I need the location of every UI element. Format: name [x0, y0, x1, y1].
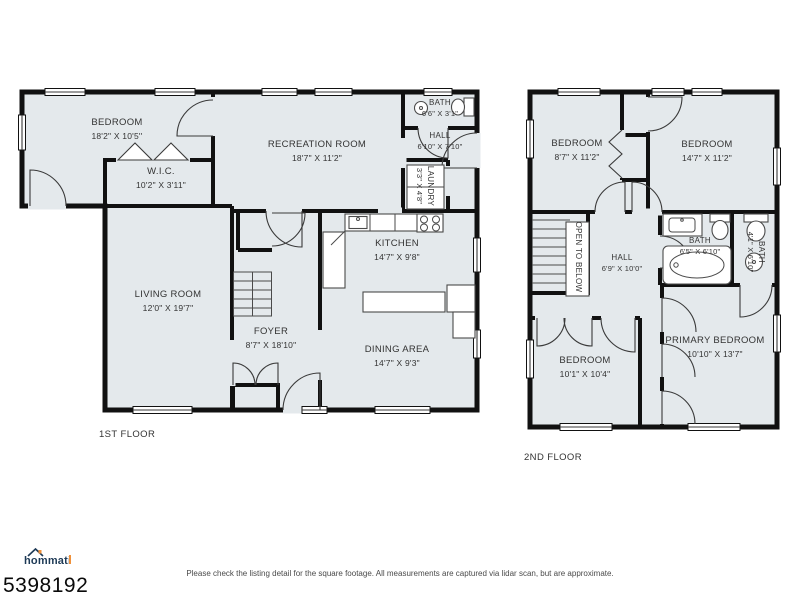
room-label-bath-2f: BATH 6'5" X 6'10" — [680, 235, 721, 257]
room-label-dining-area: DINING AREA 14'7" X 9'3" — [365, 343, 430, 369]
logo-accent-bar — [69, 555, 71, 564]
room-label-hall-1f: HALL 6'10" X 7'10" — [418, 130, 463, 152]
first-floor-title: 1ST FLOOR — [99, 429, 155, 440]
room-label-foyer: FOYER 8'7" X 18'10" — [246, 325, 297, 351]
room-label-laundry: LAUNDRY 3'3" X 4'8" — [414, 166, 436, 206]
kitchen-sink-icon — [349, 217, 367, 229]
room-label-bath-1f: BATH 6'6" X 3'1" — [422, 97, 458, 119]
chimney-icon — [39, 550, 42, 554]
room-label-hall-2f: HALL 6'9" X 10'0" — [602, 252, 643, 274]
stove-icon — [417, 214, 443, 232]
room-label-bedroom-2f-small: BEDROOM 8'7" X 11'2" — [551, 137, 602, 163]
disclaimer-text: Please check the listing detail for the … — [0, 569, 800, 578]
logo-text: hommati — [24, 555, 71, 567]
kitchen-island — [363, 292, 445, 312]
second-floor-title: 2ND FLOOR — [524, 452, 582, 463]
toilet-icon — [464, 98, 474, 116]
hommati-logo: hommati — [22, 547, 82, 569]
room-label-bedroom-1f: BEDROOM 18'2" X 10'5'' — [91, 116, 142, 142]
room-label-kitchen: KITCHEN 14'7" X 9'8" — [374, 237, 420, 263]
room-label-recreation-room: RECREATION ROOM 18'7" X 11'2" — [268, 138, 366, 164]
room-label-bedroom-2f-large: BEDROOM 14'7" X 11'2" — [681, 138, 732, 164]
floor-plan-drawing — [0, 0, 800, 600]
room-label-wic: W.I.C. 10'2" X 3'11" — [136, 165, 186, 191]
floor-plan-page: BEDROOM 18'2" X 10'5'' W.I.C. 10'2" X 3'… — [0, 0, 800, 600]
room-label-open-to-below: OPEN TO BELOW — [572, 222, 584, 293]
room-label-bedroom-2f-bottom: BEDROOM 10'1" X 10'4" — [559, 354, 610, 380]
room-label-living-room: LIVING ROOM 12'0" X 19'7" — [135, 288, 202, 314]
room-label-bath-2f-small: BATH 4'1" X 6'10" — [745, 232, 767, 273]
room-label-primary-bedroom: PRIMARY BEDROOM 10'10" X 13'7" — [665, 334, 764, 360]
